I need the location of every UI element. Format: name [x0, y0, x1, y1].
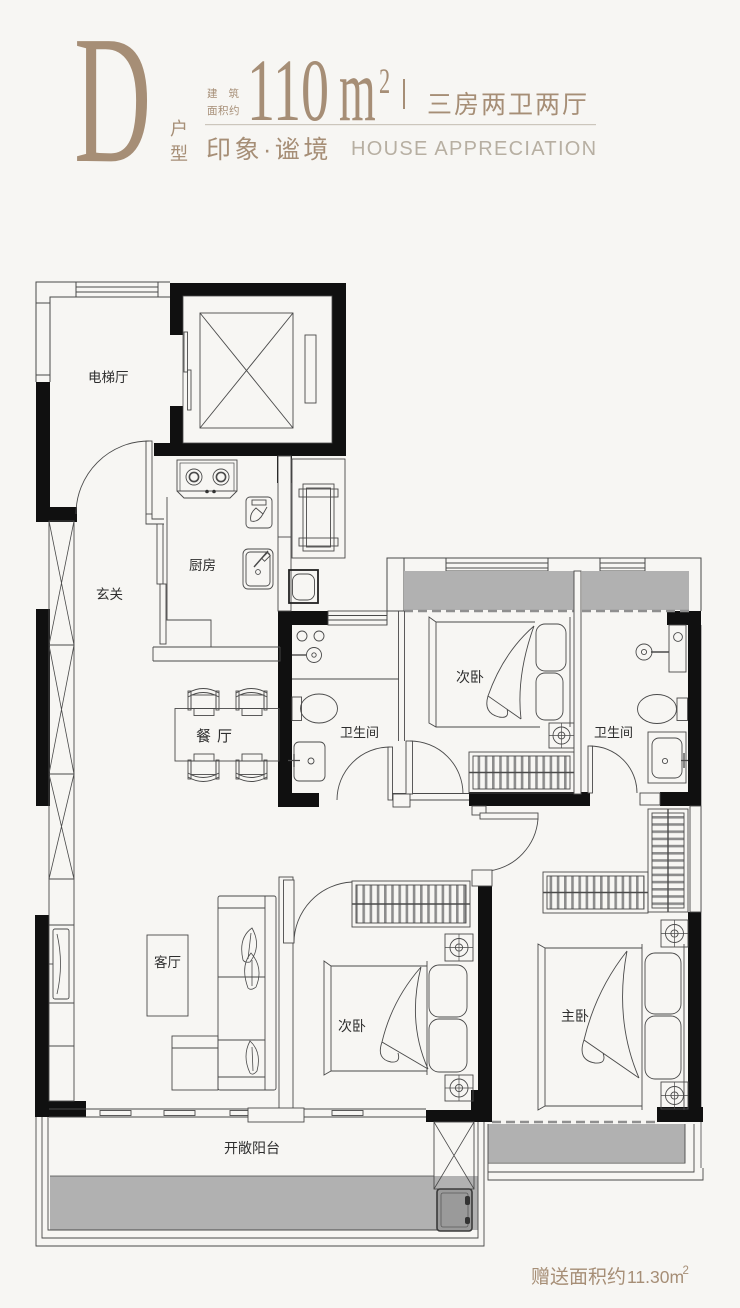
svg-text:客厅: 客厅 — [154, 954, 181, 970]
svg-text:次卧: 次卧 — [338, 1018, 366, 1034]
svg-text:D: D — [74, 0, 151, 201]
svg-text:HOUSE APPRECIATION: HOUSE APPRECIATION — [351, 138, 597, 160]
svg-text:卫生间: 卫生间 — [594, 725, 633, 740]
svg-text:玄关: 玄关 — [96, 586, 123, 602]
svg-text:餐厅: 餐厅 — [196, 728, 238, 745]
svg-text:主卧: 主卧 — [561, 1008, 589, 1024]
svg-text:11.30m: 11.30m — [627, 1267, 684, 1287]
svg-text:电梯厅: 电梯厅 — [88, 370, 129, 385]
svg-text:户: 户 — [170, 119, 188, 139]
svg-text:赠送面积约: 赠送面积约 — [531, 1266, 626, 1288]
svg-text:卫生间: 卫生间 — [340, 725, 379, 740]
svg-text:面积约: 面积约 — [207, 104, 240, 117]
svg-text:m: m — [339, 43, 376, 140]
svg-text:印象·谧境: 印象·谧境 — [206, 136, 332, 164]
svg-text:2: 2 — [379, 62, 390, 102]
svg-text:建筑: 建筑 — [207, 87, 250, 100]
svg-text:次卧: 次卧 — [456, 669, 484, 685]
svg-text:型: 型 — [170, 144, 188, 164]
svg-text:110: 110 — [247, 42, 329, 140]
svg-text:三房两卫两厅: 三房两卫两厅 — [427, 91, 589, 119]
svg-text:2: 2 — [683, 1265, 689, 1277]
svg-text:厨房: 厨房 — [189, 558, 216, 573]
svg-text:开敞阳台: 开敞阳台 — [224, 1140, 280, 1156]
